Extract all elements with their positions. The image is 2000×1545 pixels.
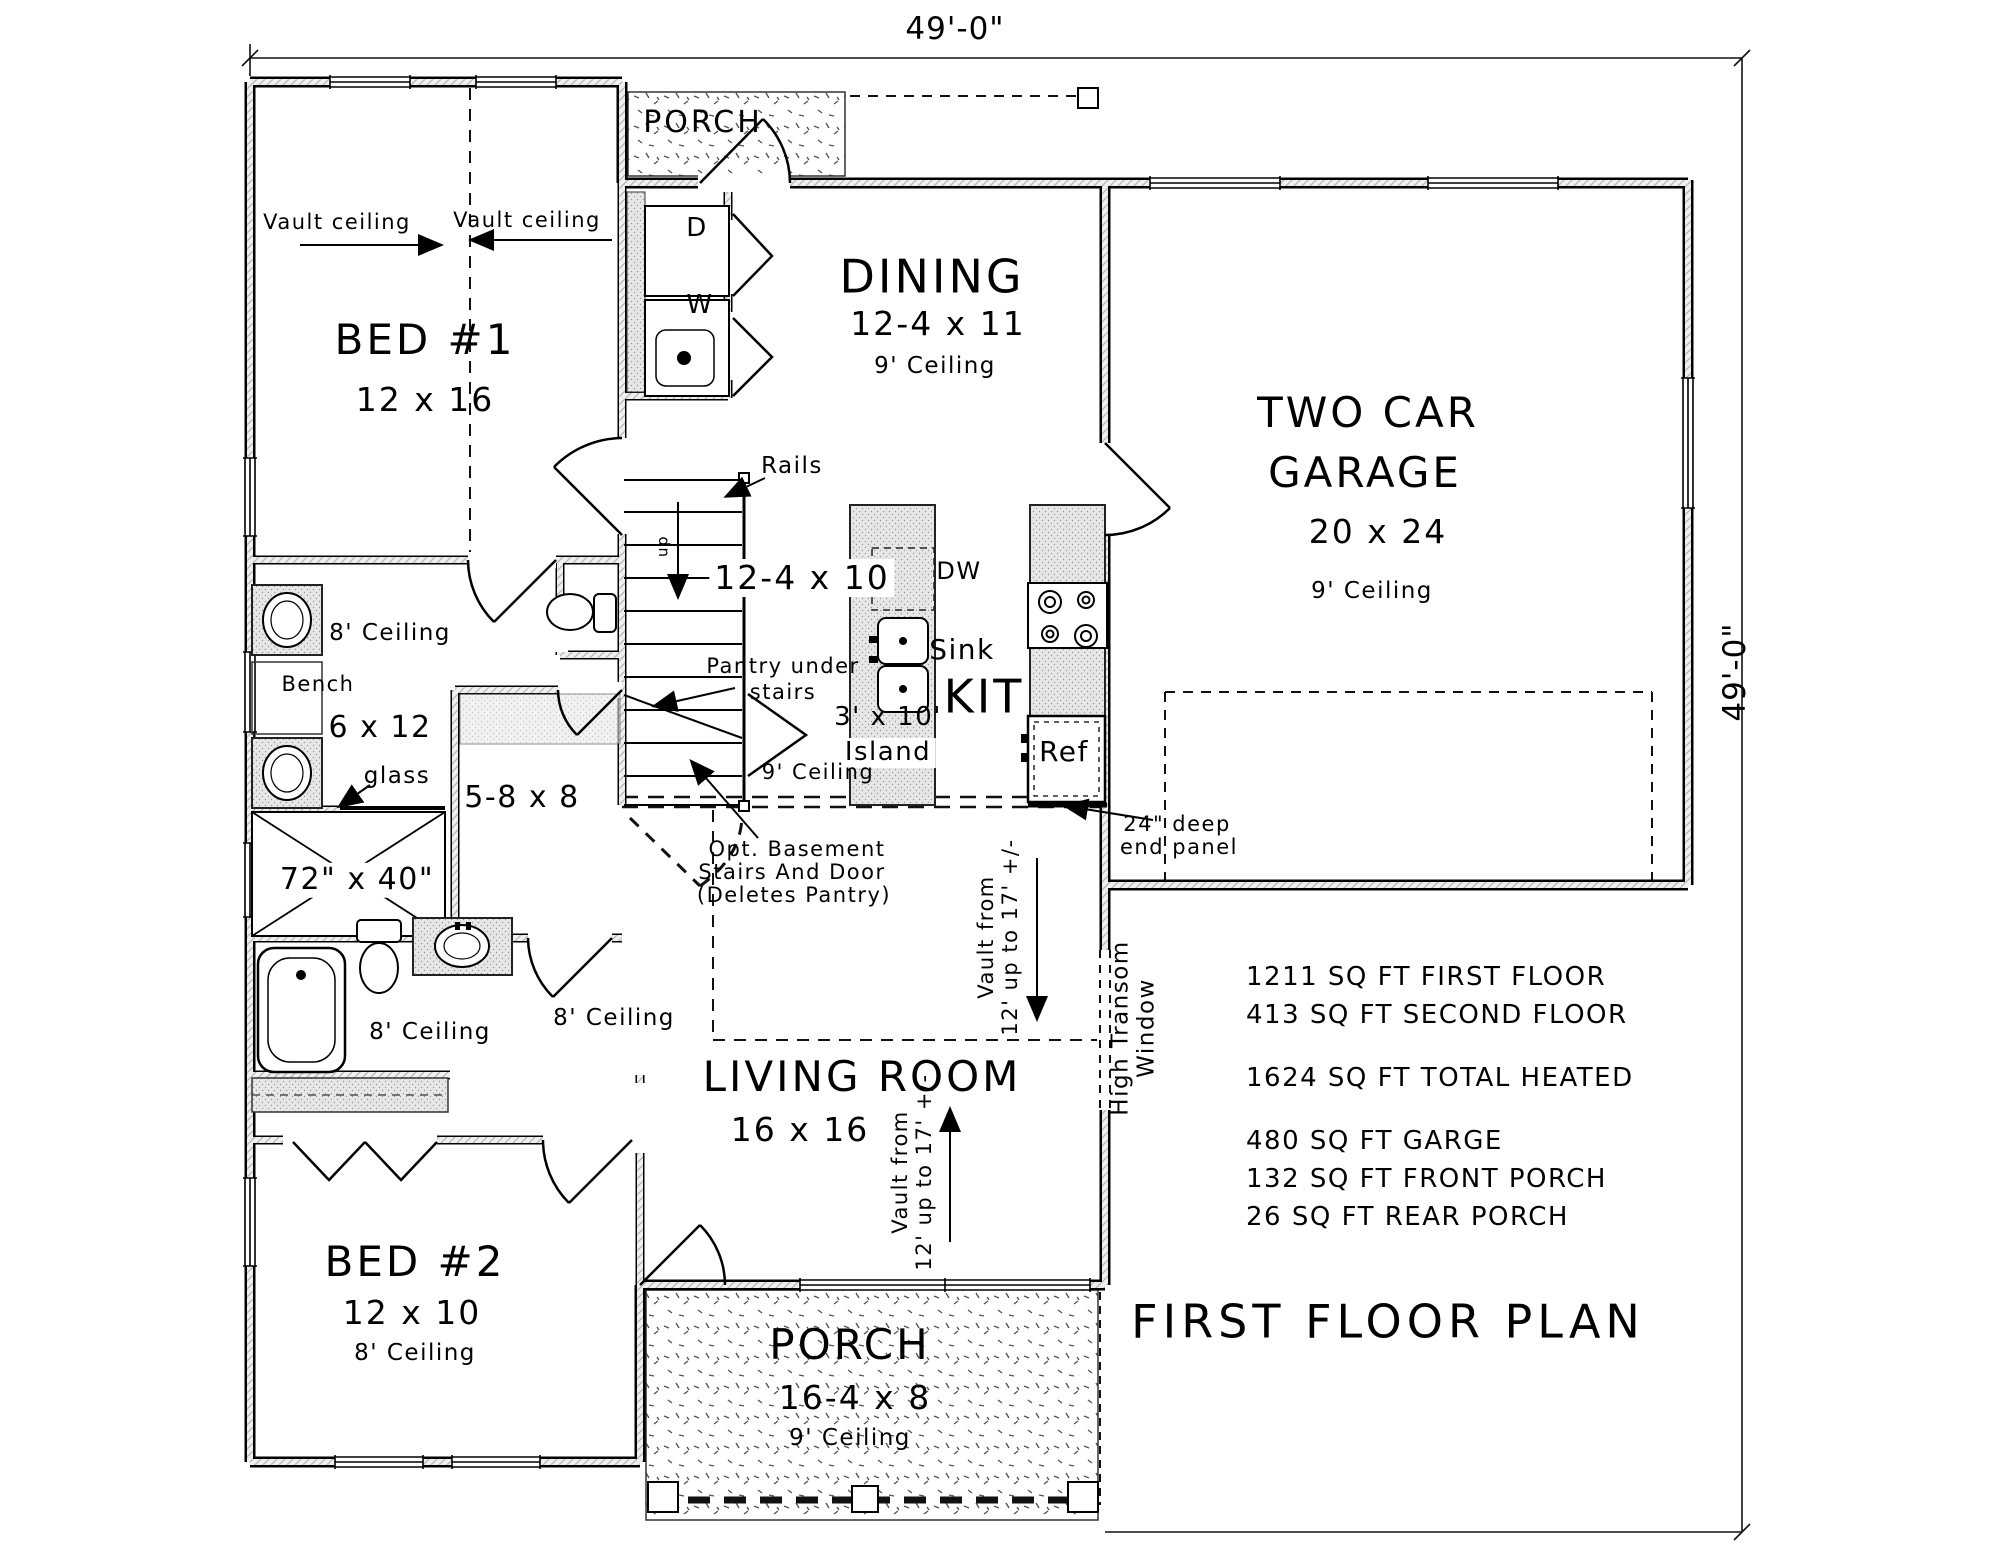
washer-label: W <box>686 291 713 321</box>
transom-annotation-line1: High Transom <box>1108 940 1134 1115</box>
vault-annotation-living-line1: Vault from <box>888 1073 912 1270</box>
basement-annotation-line3: (Deletes Pantry) <box>697 883 891 907</box>
living-room-size: 16 x 16 <box>731 1111 870 1149</box>
transom-annotation: High Transom Window <box>1108 940 1161 1115</box>
island-size: 3' x 10' <box>834 703 942 733</box>
dining-size: 12-4 x 11 <box>850 305 1025 343</box>
dryer-label: D <box>686 214 708 244</box>
garage-size: 20 x 24 <box>1309 513 1448 551</box>
hall-ceiling: 8' Ceiling <box>553 1005 675 1031</box>
vault-annotation-living: Vault from 12' up to 17' +/- <box>888 1073 936 1270</box>
porch-top-label: PORCH <box>643 106 763 141</box>
bed2-label: BED #2 <box>325 1238 506 1286</box>
kitchen-ceiling: 9' Ceiling <box>762 760 875 784</box>
dining-ceiling: 9' Ceiling <box>874 353 996 379</box>
shower-size: 72" x 40" <box>275 863 439 898</box>
basement-annotation-line1: Opt. Basement <box>709 837 886 861</box>
first-floor-plan: 49'-0" 49'-0" PORCH Vault ceiling Vault … <box>0 0 2000 1545</box>
wic-size: 5-8 x 8 <box>464 781 579 816</box>
porch-bottom-size: 16-4 x 8 <box>779 1379 931 1417</box>
pantry-annotation-line2: stairs <box>750 680 816 704</box>
garage-label-line2: GARAGE <box>1268 449 1462 497</box>
basement-annotation-line2: Stairs And Door <box>698 860 885 884</box>
vault-annotation-kitchen-line1: Vault from <box>974 838 998 1035</box>
bed2-ceiling: 8' Ceiling <box>354 1340 476 1366</box>
vault-annotation-living-line2: 12' up to 17' +/- <box>912 1073 936 1270</box>
area-statistics: 1211 SQ FT FIRST FLOOR 413 SQ FT SECOND … <box>1246 962 1634 1240</box>
hall-bath-ceiling: 8' Ceiling <box>369 1019 491 1045</box>
kitchen-size: 12-4 x 10 <box>709 559 894 597</box>
dimension-height: 49'-0" <box>1718 622 1754 721</box>
vault-annotation-kitchen-line2: 12' up to 17' +/- <box>998 838 1022 1035</box>
master-bath-size: 6 x 12 <box>328 711 431 746</box>
garage-ceiling: 9' Ceiling <box>1311 578 1433 604</box>
dimension-width: 49'-0" <box>905 12 1004 48</box>
kitchen-label: KIT <box>944 671 1025 724</box>
bed1-label: BED #1 <box>335 316 516 364</box>
dining-label: DINING <box>839 251 1024 304</box>
transom-annotation-line2: Window <box>1134 940 1160 1115</box>
porch-bottom-ceiling: 9' Ceiling <box>789 1425 911 1451</box>
stat-second-floor: 413 SQ FT SECOND FLOOR <box>1246 1000 1634 1030</box>
ref-label: Ref <box>1039 736 1089 768</box>
rails-annotation: Rails <box>761 453 823 479</box>
vault-ceiling-right: Vault ceiling <box>453 208 601 232</box>
vault-ceiling-left: Vault ceiling <box>263 210 411 234</box>
pantry-annotation-line1: Pantry under <box>706 654 859 678</box>
stat-total-heated: 1624 SQ FT TOTAL HEATED <box>1246 1063 1634 1093</box>
end-panel-annotation-line1: 24" deep <box>1123 812 1231 836</box>
bed1-size: 12 x 16 <box>356 381 495 419</box>
stat-first-floor: 1211 SQ FT FIRST FLOOR <box>1246 962 1634 992</box>
page-title: FIRST FLOOR PLAN <box>1131 1296 1645 1349</box>
stat-rear-porch: 26 SQ FT REAR PORCH <box>1246 1202 1634 1232</box>
master-bath-ceiling: 8' Ceiling <box>329 620 451 646</box>
vault-annotation-kitchen: Vault from 12' up to 17' +/- <box>974 838 1022 1035</box>
porch-bottom-label: PORCH <box>769 1321 930 1369</box>
bed2-size: 12 x 10 <box>343 1294 482 1332</box>
stat-garage: 480 SQ FT GARGE <box>1246 1126 1634 1156</box>
stat-front-porch: 132 SQ FT FRONT PORCH <box>1246 1164 1634 1194</box>
living-room-label: LIVING ROOM <box>703 1053 1022 1101</box>
sink-label: Sink <box>929 634 995 666</box>
glass-annotation: glass <box>364 763 431 789</box>
stairs-up-label: up <box>654 535 671 557</box>
end-panel-annotation-line2: end panel <box>1120 835 1238 859</box>
dishwasher-label: DW <box>936 558 981 586</box>
bench-label: Bench <box>282 672 355 696</box>
garage-label-line1: TWO CAR <box>1257 389 1479 437</box>
